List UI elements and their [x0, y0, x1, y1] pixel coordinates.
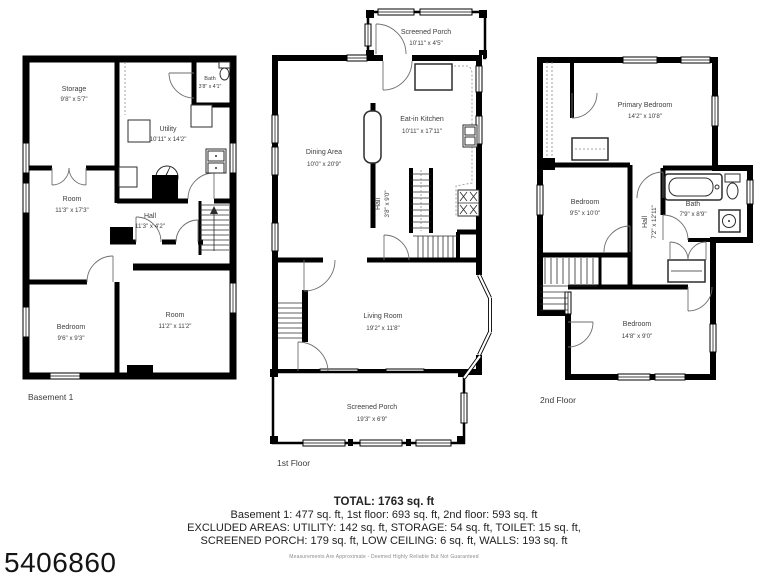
room-label: Bedroom	[571, 199, 600, 206]
first-floor-label: 1st Floor	[277, 458, 310, 468]
room-dims: 19'3" x 6'9"	[357, 416, 388, 423]
room-dims: 9'8" x 5'7"	[60, 96, 87, 103]
floorplan-page: { "colors": { "wall": "#000000", "room_t…	[0, 0, 768, 576]
room-dims: 11'3" x 17'3"	[55, 207, 88, 214]
room-dims: 14'8" x 9'0"	[622, 333, 653, 340]
room-dims: 7'2" x 12'11"	[651, 205, 658, 238]
room-label: Room	[166, 312, 185, 319]
first-bay-window	[479, 275, 490, 355]
room-dims: 10'0" x 20'9"	[307, 161, 341, 168]
toilet-icon	[219, 62, 230, 68]
room-label: Bedroom	[57, 324, 86, 331]
mls-number: 5406860	[4, 547, 117, 579]
room-dims: 10'11" x 17'11"	[402, 128, 442, 135]
room-dims: 10'11" x 14'2"	[150, 136, 187, 143]
basement-floor-label: Basement 1	[28, 392, 73, 402]
room-label: Bedroom	[623, 321, 652, 328]
room-label: Dining Area	[306, 149, 342, 156]
basement-stairs	[200, 201, 229, 255]
room-dims: 7'9" x 8'9"	[679, 211, 706, 218]
room-label: Utility	[159, 126, 177, 133]
room-dims: 9'6" x 9'3"	[57, 335, 84, 342]
excluded-areas-line1: EXCLUDED AREAS: UTILITY: 142 sq. ft, STO…	[0, 522, 768, 535]
basement-floorplan: Storage 9'8" x 5'7" Bath 3'8" x 4'1" Uti…	[22, 55, 237, 385]
floor-areas: Basement 1: 477 sq. ft, 1st floor: 693 s…	[0, 509, 768, 522]
first-floor-floorplan: Screened Porch 10'11" x 4'5" Eat-in Kitc…	[268, 8, 503, 478]
second-doors	[568, 93, 712, 347]
room-dims: 11'2" x 11'2"	[158, 323, 191, 330]
room-dims: 3'8" x 4'1"	[199, 84, 222, 90]
room-label: Bath	[204, 76, 216, 82]
closet	[572, 138, 608, 160]
second-bath-fixtures	[665, 174, 740, 232]
total-area: TOTAL: 1763 sq. ft	[0, 495, 768, 509]
room-label: Screened Porch	[347, 404, 397, 411]
room-label: Eat-in Kitchen	[400, 116, 444, 123]
toilet-icon	[725, 174, 740, 182]
room-dims: 3'8" x 9'0"	[384, 190, 391, 217]
room-dims: 14'2" x 10'8"	[628, 113, 662, 120]
room-dims: 19'2" x 11'8"	[366, 325, 399, 332]
room-label: Room	[63, 196, 82, 203]
island-icon	[364, 111, 381, 163]
room-label: Hall	[144, 213, 157, 220]
room-label: Bath	[686, 201, 701, 208]
room-label: Hall	[375, 198, 382, 211]
room-dims: 10'11" x 4'5"	[409, 40, 442, 47]
room-dims: 9'5" x 10'0"	[570, 210, 601, 217]
room-label: Hall	[642, 216, 649, 229]
room-label: Screened Porch	[401, 29, 451, 36]
furnace-icon	[152, 175, 178, 201]
room-label: Living Room	[364, 313, 403, 320]
second-floor-floorplan: Primary Bedroom 14'2" x 10'8" Bedroom 9'…	[533, 52, 758, 382]
room-label: Primary Bedroom	[618, 102, 673, 109]
second-floor-label: 2nd Floor	[540, 395, 576, 405]
room-dims: 11'3" x 4'2"	[135, 223, 165, 230]
room-label: Storage	[62, 86, 87, 93]
